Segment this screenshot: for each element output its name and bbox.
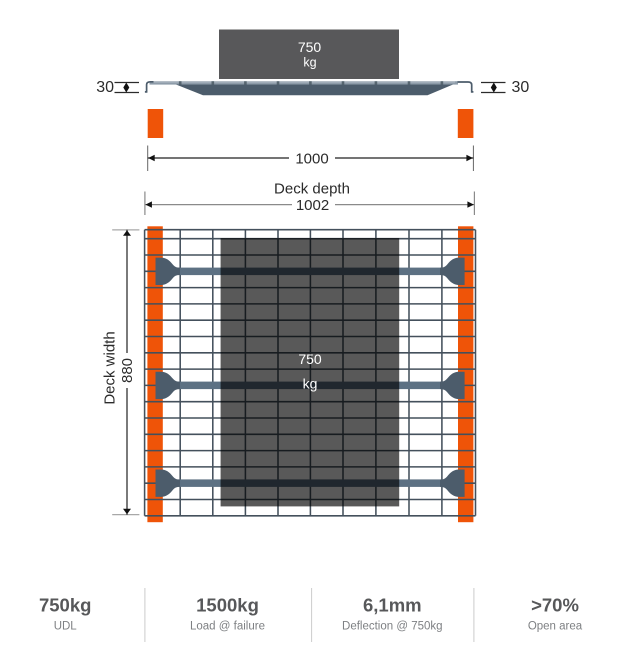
svg-text:Load @ failure: Load @ failure (190, 621, 265, 633)
svg-text:kg: kg (303, 376, 318, 392)
svg-text:1000: 1000 (295, 151, 328, 168)
svg-text:750: 750 (298, 39, 322, 55)
svg-text:Deflection @ 750kg: Deflection @ 750kg (342, 621, 443, 633)
svg-text:880: 880 (119, 358, 136, 383)
svg-text:1002: 1002 (296, 197, 329, 214)
svg-text:30: 30 (96, 79, 114, 96)
svg-text:750: 750 (298, 351, 322, 367)
svg-text:kg: kg (303, 56, 316, 70)
svg-text:>70%: >70% (531, 595, 579, 616)
svg-text:UDL: UDL (54, 621, 78, 633)
svg-text:6,1mm: 6,1mm (363, 595, 422, 616)
svg-text:Deck width: Deck width (102, 331, 119, 404)
svg-text:Open area: Open area (528, 621, 583, 633)
svg-text:30: 30 (512, 79, 530, 96)
svg-text:Deck depth: Deck depth (274, 181, 350, 198)
svg-text:1500kg: 1500kg (196, 595, 259, 616)
svg-text:750kg: 750kg (39, 595, 91, 616)
